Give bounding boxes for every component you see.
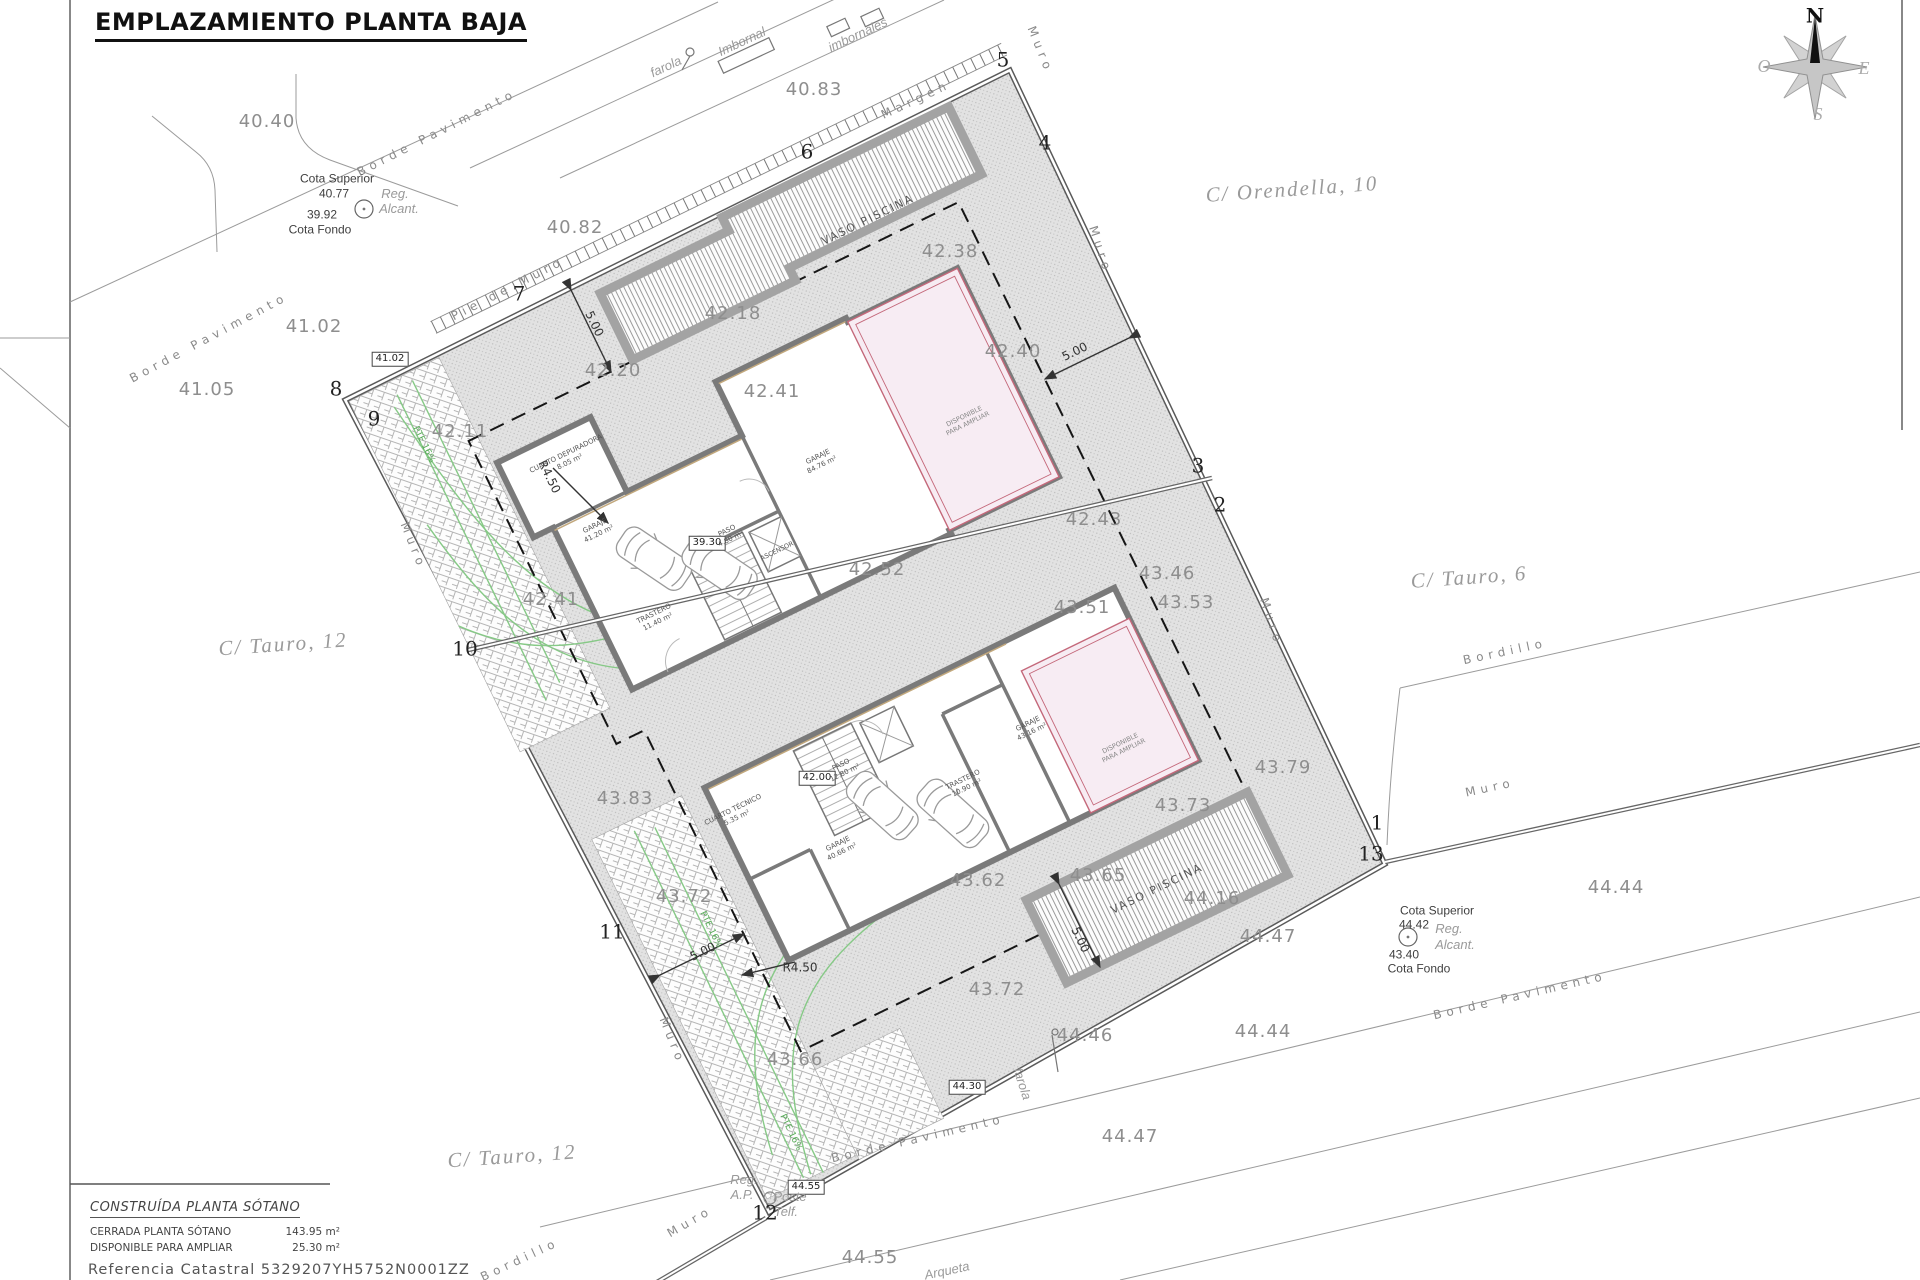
utility-annotation: Imbornal: [716, 24, 769, 60]
street-name: C/ Tauro, 6: [1410, 560, 1528, 594]
elevation-cota: 42.40: [985, 341, 1042, 364]
room-label: GARAJE 84.76 m²: [802, 446, 838, 476]
boundary-point-number: 8: [330, 377, 343, 402]
elevation-cota: 43.65: [1070, 865, 1127, 888]
elevation-cota: 43.66: [767, 1049, 824, 1072]
linear-annotation: Muro: [1464, 775, 1516, 800]
elevation-cota: 42.18: [705, 303, 762, 326]
elevation-cota: 44.47: [1102, 1126, 1159, 1149]
room-label: CUARTO TÉCNICO 5.35 m²: [703, 792, 767, 835]
utility-annotation: imbornales: [826, 14, 891, 56]
elevation-cota: 40.83: [786, 79, 843, 102]
linear-annotation: Bordillo: [1462, 636, 1549, 668]
linear-annotation: Borde Pavimento: [830, 1112, 1006, 1167]
street-name: C/ Tauro, 12: [447, 1138, 578, 1173]
cota-annotation: Cota Superior: [300, 172, 374, 187]
room-label: PASO 12.80 m²: [825, 754, 861, 784]
legend-block: CONSTRUÍDA PLANTA SÓTANO CERRADA PLANTA …: [90, 1196, 390, 1258]
cota-annotation: Cota Fondo: [289, 223, 352, 238]
utility-annotation: Alcant.: [1435, 937, 1475, 953]
elevation-cota: 43.73: [1155, 795, 1212, 818]
boundary-point-number: 4: [1039, 131, 1052, 156]
boundary-point-number: 11: [599, 920, 624, 945]
room-label: TRASTERO 10.90 m²: [944, 768, 985, 800]
elevation-cota: 43.46: [1139, 563, 1196, 586]
elevation-cota: 44.55: [842, 1247, 899, 1270]
boundary-point-number: 2: [1214, 493, 1227, 518]
utility-annotation: farola: [1009, 1066, 1035, 1102]
elevation-cota: 42.41: [744, 381, 801, 404]
room-label: GARAJE 40.66 m²: [822, 833, 858, 863]
boundary-point-number: 5: [997, 48, 1010, 73]
room-label: TRASTERO 11.40 m²: [635, 602, 676, 634]
elevation-cota: 44.16: [1184, 888, 1241, 911]
elevation-cota: 43.72: [969, 979, 1026, 1002]
utility-annotation: Poste: [773, 1189, 806, 1205]
elevation-cota: 42.38: [922, 241, 979, 264]
elevation-cota: 42.11: [432, 421, 489, 444]
elevation-cota: 42.43: [1066, 509, 1123, 532]
elevation-cota: 43.72: [656, 886, 713, 909]
legend-heading: CONSTRUÍDA PLANTA SÓTANO: [90, 1200, 300, 1218]
cota-annotation: 43.40: [1389, 948, 1419, 963]
linear-annotation: Borde Pavimento: [127, 290, 291, 386]
boxed-level: 41.02: [372, 352, 409, 367]
compass-west-label: O: [1758, 55, 1771, 78]
utility-annotation: farola: [648, 53, 684, 81]
dimension-text: 5.00: [1067, 925, 1092, 956]
elevation-cota: 44.46: [1057, 1025, 1114, 1048]
linear-annotation: Muro: [656, 1015, 689, 1067]
linear-annotation: Muro: [397, 520, 430, 572]
boundary-point-number: 9: [368, 407, 381, 432]
annotation-layer: 40.4040.8240.8341.0241.0542.1142.2042.18…: [0, 0, 1920, 1280]
linear-annotation: Muro: [665, 1203, 716, 1241]
elevation-cota: 42.52: [849, 559, 906, 582]
linear-annotation: Muro: [1256, 596, 1286, 648]
street-name: C/ Orendella, 10: [1205, 170, 1379, 208]
boxed-level: 44.30: [949, 1080, 986, 1095]
room-label: ASCENSOR: [759, 539, 795, 562]
compass-east-label: E: [1859, 57, 1870, 80]
legend-row: CERRADA PLANTA SÓTANO 143.95 m²: [90, 1226, 340, 1238]
reform-label: DISPONIBLE PARA AMPLIAR: [941, 402, 991, 437]
elevation-cota: 44.44: [1235, 1021, 1292, 1044]
compass-north-label: N: [1806, 4, 1824, 29]
reform-label: DISPONIBLE PARA AMPLIAR: [1097, 729, 1147, 764]
utility-annotation: Reg.: [381, 186, 408, 202]
pool-label: VASO PISCINA: [820, 192, 917, 249]
compass-south-label: S: [1814, 103, 1823, 126]
elevation-cota: 42.41: [523, 589, 580, 612]
street-name: C/ Tauro, 12: [218, 626, 349, 661]
elevation-cota: 43.62: [950, 870, 1007, 893]
legend-row: DISPONIBLE PARA AMPLIAR 25.30 m²: [90, 1242, 340, 1254]
site-plan-canvas: EMPLAZAMIENTO PLANTA BAJA 40.4040.8240.8…: [0, 0, 1920, 1280]
room-label: PASO 4.80 m²: [713, 521, 745, 549]
cota-annotation: 44.42: [1399, 918, 1429, 933]
elevation-cota: 41.05: [179, 379, 236, 402]
elevation-cota: 40.40: [239, 111, 296, 134]
slope-annotation: PTE 16%: [776, 1113, 803, 1153]
linear-annotation: Muro: [1085, 224, 1115, 276]
cota-annotation: Cota Fondo: [1388, 962, 1451, 977]
boundary-point-number: 10: [452, 637, 477, 662]
utility-annotation: Reg.: [730, 1172, 757, 1188]
utility-annotation: Arqueta: [923, 1258, 971, 1280]
cota-annotation: 40.77: [319, 187, 349, 202]
linear-annotation: Margen: [879, 77, 953, 122]
linear-annotation: Pie de Muro: [449, 254, 567, 324]
cadastral-reference: Referencia Catastral 5329207YH5752N0001Z…: [88, 1262, 470, 1278]
elevation-cota: 44.44: [1588, 877, 1645, 900]
utility-annotation: Telf.: [774, 1204, 798, 1220]
boundary-point-number: 3: [1192, 454, 1205, 479]
room-label: CUARTO DEPURADORA 8.05 m²: [528, 433, 608, 484]
boundary-point-number: 13: [1358, 842, 1383, 867]
elevation-cota: 43.53: [1158, 592, 1215, 615]
elevation-cota: 43.51: [1054, 597, 1111, 620]
linear-annotation: Borde Pavimento: [355, 86, 520, 180]
elevation-cota: 41.02: [286, 316, 343, 339]
elevation-cota: 42.20: [585, 360, 642, 383]
room-label: GARAJE 43.16 m²: [1012, 713, 1048, 743]
linear-annotation: Bordillo: [478, 1235, 562, 1280]
dimension-text: 5.00: [1060, 339, 1091, 364]
utility-annotation: Alcant.: [379, 201, 419, 217]
room-label: GARAJE 41.20 m²: [579, 515, 615, 545]
cota-annotation: 39.92: [307, 208, 337, 223]
elevation-cota: 44.47: [1240, 926, 1297, 949]
boundary-point-number: 6: [801, 140, 814, 165]
cota-annotation: Cota Superior: [1400, 904, 1474, 919]
utility-annotation: Reg.: [1435, 921, 1462, 937]
linear-annotation: Borde Pavimento: [1432, 969, 1608, 1024]
utility-annotation: A.P.: [731, 1187, 754, 1203]
dimension-text: 5.00: [581, 309, 606, 340]
elevation-cota: 40.82: [547, 217, 604, 240]
dimension-text: R4.50: [782, 961, 817, 976]
elevation-cota: 43.79: [1255, 757, 1312, 780]
linear-annotation: Muro: [1024, 24, 1057, 76]
elevation-cota: 43.83: [597, 788, 654, 811]
boundary-point-number: 1: [1371, 811, 1384, 836]
